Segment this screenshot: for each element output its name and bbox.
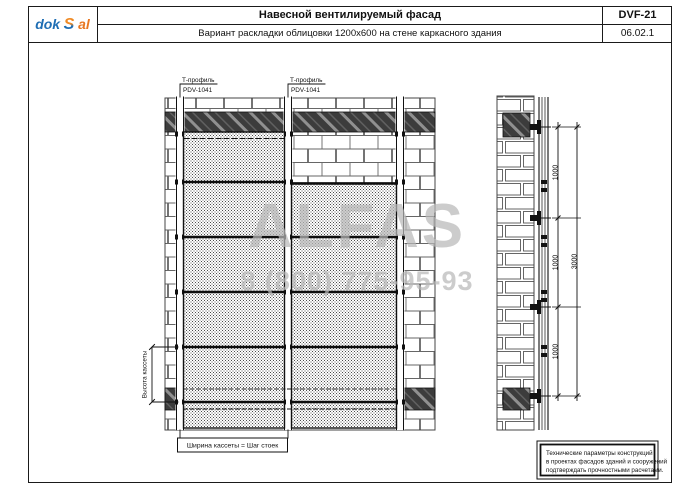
note-line-3: подтверждать прочностными расчетами. xyxy=(546,467,664,474)
wall-section xyxy=(497,96,534,430)
front-elevation: Т-профиль PDV-1041 Т-профиль PDV-1041 Вы… xyxy=(142,77,436,452)
section-lintel-bottom xyxy=(503,388,530,410)
dim-1000-a: 1000 xyxy=(553,165,560,181)
facade-drawing: Т-профиль PDV-1041 Т-профиль PDV-1041 Вы… xyxy=(0,0,700,495)
watermark-phone: 8 (800) 775-95-93 xyxy=(240,266,473,296)
note-box: Технические параметры конструкций в прое… xyxy=(537,441,668,479)
side-dimensions: 1000 1000 1000 3000 xyxy=(552,122,581,401)
section-lintel-top xyxy=(503,113,530,137)
watermark-name: ALFAS xyxy=(248,192,466,261)
width-dimension-label: Ширина кассеты = Шаг стоек xyxy=(187,443,278,450)
side-section: 1000 1000 1000 3000 xyxy=(497,96,581,430)
dim-3000-total: 3000 xyxy=(572,254,579,270)
dim-1000-c: 1000 xyxy=(553,344,560,360)
dim-1000-b: 1000 xyxy=(553,255,560,271)
note-line-1: Технические параметры конструкций xyxy=(546,450,653,457)
callout-1-line1: Т-профиль xyxy=(182,77,215,84)
bottom-lintel-band-left xyxy=(165,388,176,410)
watermark: ALFAS 8 (800) 775-95-93 xyxy=(240,192,473,296)
callout-1-line2: PDV-1041 xyxy=(183,87,213,94)
callout-2-line2: PDV-1041 xyxy=(291,87,321,94)
guide-profile xyxy=(539,97,548,430)
drawing-sheet: dok S al Навесной вентилируемый фасад Ва… xyxy=(0,0,700,495)
callout-2-line1: Т-профиль xyxy=(290,77,323,84)
callout-t-profile-2: Т-профиль PDV-1041 xyxy=(288,77,325,97)
bottom-lintel-band-right xyxy=(404,388,435,410)
height-dimension-label: Высота кассеты xyxy=(142,350,149,398)
top-lintel-band xyxy=(165,112,435,132)
callout-t-profile-1: Т-профиль PDV-1041 xyxy=(180,77,217,97)
width-dimension: Ширина кассеты = Шаг стоек xyxy=(178,430,289,452)
note-line-2: в проектах фасадов зданий и сооружений xyxy=(546,459,668,466)
